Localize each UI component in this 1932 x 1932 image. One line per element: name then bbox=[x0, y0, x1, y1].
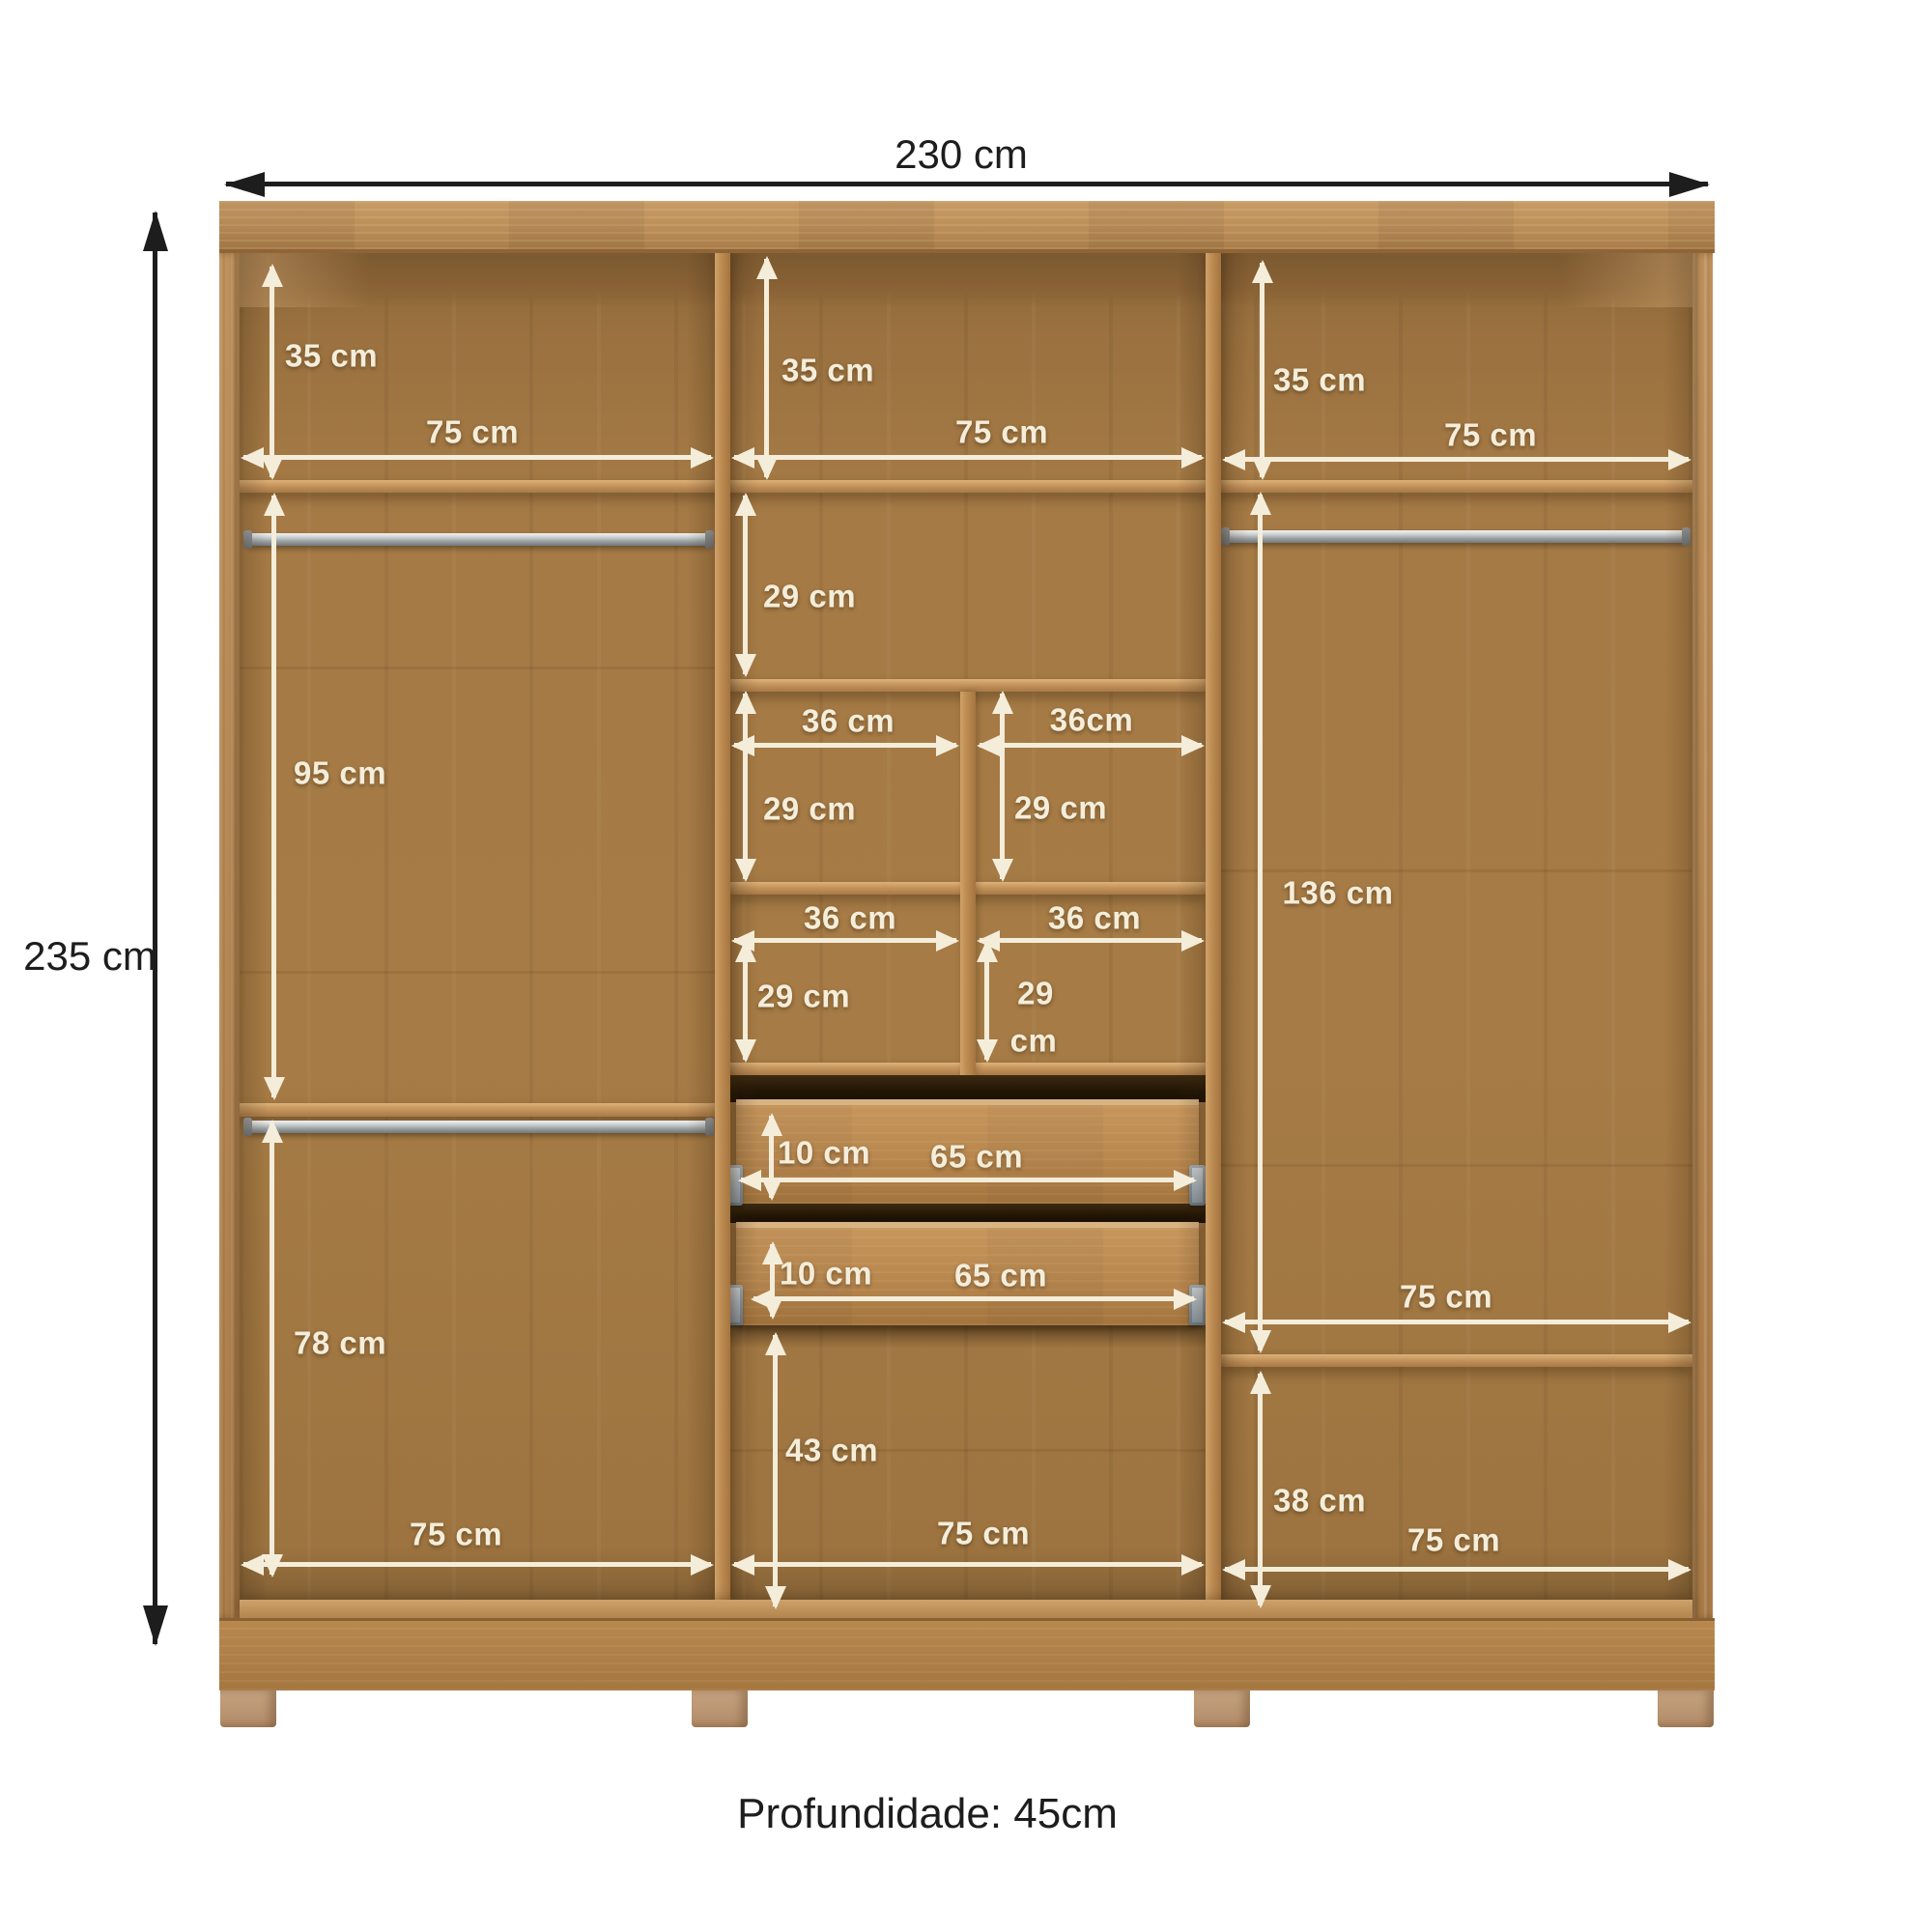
dim-label-cubby-r1-right-width: 36cm bbox=[1050, 704, 1133, 736]
dim-arrow-top-right-height bbox=[1260, 263, 1264, 477]
dim-label-left-upper-height: 95 cm bbox=[294, 757, 386, 789]
dim-label-cubby-r2-left-width: 36 cm bbox=[804, 902, 896, 934]
dim-arrow-left-bottom-width bbox=[243, 1562, 711, 1567]
overall-width-arrow bbox=[226, 182, 1708, 186]
partition-right bbox=[1206, 253, 1221, 1600]
dim-arrow-cubby-r1-right-height bbox=[1000, 694, 1005, 879]
dim-arrow-top-right-width bbox=[1225, 457, 1689, 462]
dim-label-drawer2-width: 65 cm bbox=[954, 1260, 1047, 1292]
dim-label-middle-bottom-width: 75 cm bbox=[937, 1518, 1030, 1549]
dim-arrow-cubby-r2-left-height bbox=[743, 942, 748, 1060]
dim-label-cubby-r2-right-height-value: 29 bbox=[1017, 978, 1054, 1009]
dim-label-top-left-height: 35 cm bbox=[285, 340, 378, 372]
dim-arrow-top-middle-height bbox=[764, 259, 769, 477]
dim-label-drawer1-height: 10 cm bbox=[778, 1137, 870, 1169]
dim-arrow-drawer2-width bbox=[753, 1296, 1194, 1301]
dim-label-right-bottom-width: 75 cm bbox=[1407, 1524, 1500, 1556]
overall-width-label: 230 cm bbox=[895, 134, 1028, 175]
dim-arrow-cubby-r1-left-height bbox=[743, 694, 748, 879]
dim-label-top-middle-width: 75 cm bbox=[955, 416, 1048, 448]
overall-height-label: 235 cm bbox=[23, 936, 156, 977]
dim-label-middle-lower-height: 43 cm bbox=[785, 1435, 878, 1466]
dim-arrow-cubby-r2-left-width bbox=[734, 938, 956, 943]
dim-arrow-left-upper-height bbox=[271, 496, 276, 1097]
dim-label-right-lower-height: 38 cm bbox=[1273, 1485, 1366, 1517]
dim-arrow-left-lower-height bbox=[270, 1122, 274, 1575]
wardrobe-foot bbox=[220, 1690, 276, 1727]
dim-label-cubby-r1-left-height: 29 cm bbox=[763, 793, 856, 825]
dim-arrow-top-left-width bbox=[243, 455, 711, 460]
dim-label-left-bottom-width: 75 cm bbox=[410, 1519, 502, 1550]
dim-arrow-top-middle-width bbox=[734, 455, 1202, 460]
overall-height-arrow bbox=[153, 213, 157, 1644]
partition-left bbox=[715, 253, 730, 1600]
dim-label-top-right-width: 75 cm bbox=[1444, 419, 1537, 451]
dim-arrow-right-hanging-height bbox=[1258, 495, 1263, 1350]
dim-label-top-middle-height: 35 cm bbox=[781, 355, 874, 386]
base-front-panel bbox=[219, 1618, 1715, 1690]
dim-arrow-drawer1-height bbox=[769, 1116, 774, 1198]
dim-label-cubby-r1-right-height: 29 cm bbox=[1014, 792, 1107, 824]
dim-arrow-drawer1-width bbox=[741, 1178, 1194, 1182]
dim-arrow-right-shelf-width bbox=[1225, 1320, 1689, 1324]
dim-label-cubby-r1-left-width: 36 cm bbox=[802, 705, 895, 737]
wardrobe-foot bbox=[692, 1690, 748, 1727]
crown-top-board bbox=[219, 201, 1715, 253]
dim-label-drawer1-width: 65 cm bbox=[930, 1141, 1023, 1173]
dim-label-top-left-width: 75 cm bbox=[426, 416, 519, 448]
dim-label-cubby-r2-left-height: 29 cm bbox=[757, 980, 850, 1012]
right-side-panel bbox=[1692, 253, 1713, 1618]
dim-arrow-top-left-height bbox=[270, 267, 274, 477]
dim-arrow-middle-bottom-width bbox=[734, 1562, 1202, 1567]
bottom-floor-panel bbox=[240, 1600, 1692, 1618]
dim-label-right-shelf-width: 75 cm bbox=[1400, 1281, 1492, 1313]
dim-label-right-hanging-height: 136 cm bbox=[1283, 877, 1394, 909]
dim-arrow-right-bottom-width bbox=[1225, 1567, 1689, 1572]
dim-label-cubby-r2-right-width: 36 cm bbox=[1048, 902, 1141, 934]
wardrobe-foot bbox=[1194, 1690, 1250, 1727]
dim-label-middle-shelf-height: 29 cm bbox=[763, 581, 856, 612]
dim-label-left-lower-height: 78 cm bbox=[294, 1327, 386, 1359]
section-shading bbox=[1221, 253, 1692, 1600]
dim-label-drawer2-height: 10 cm bbox=[780, 1258, 872, 1290]
dim-label-cubby-r2-right-height-unit: cm bbox=[1010, 1025, 1058, 1057]
depth-note: Profundidade: 45cm bbox=[737, 1793, 1118, 1835]
wardrobe-foot bbox=[1658, 1690, 1714, 1727]
dim-arrow-cubby-r1-right-width bbox=[980, 743, 1202, 748]
dim-label-top-right-height: 35 cm bbox=[1273, 364, 1366, 396]
dim-arrow-cubby-r1-left-width bbox=[734, 743, 956, 748]
left-side-panel bbox=[219, 253, 240, 1618]
dim-arrow-middle-shelf-height bbox=[743, 496, 748, 674]
wardrobe-dimension-diagram: 230 cm 235 cm bbox=[0, 0, 1932, 1932]
dim-arrow-cubby-r2-right-width bbox=[980, 938, 1202, 943]
dim-arrow-cubby-r2-right-height bbox=[984, 942, 989, 1060]
